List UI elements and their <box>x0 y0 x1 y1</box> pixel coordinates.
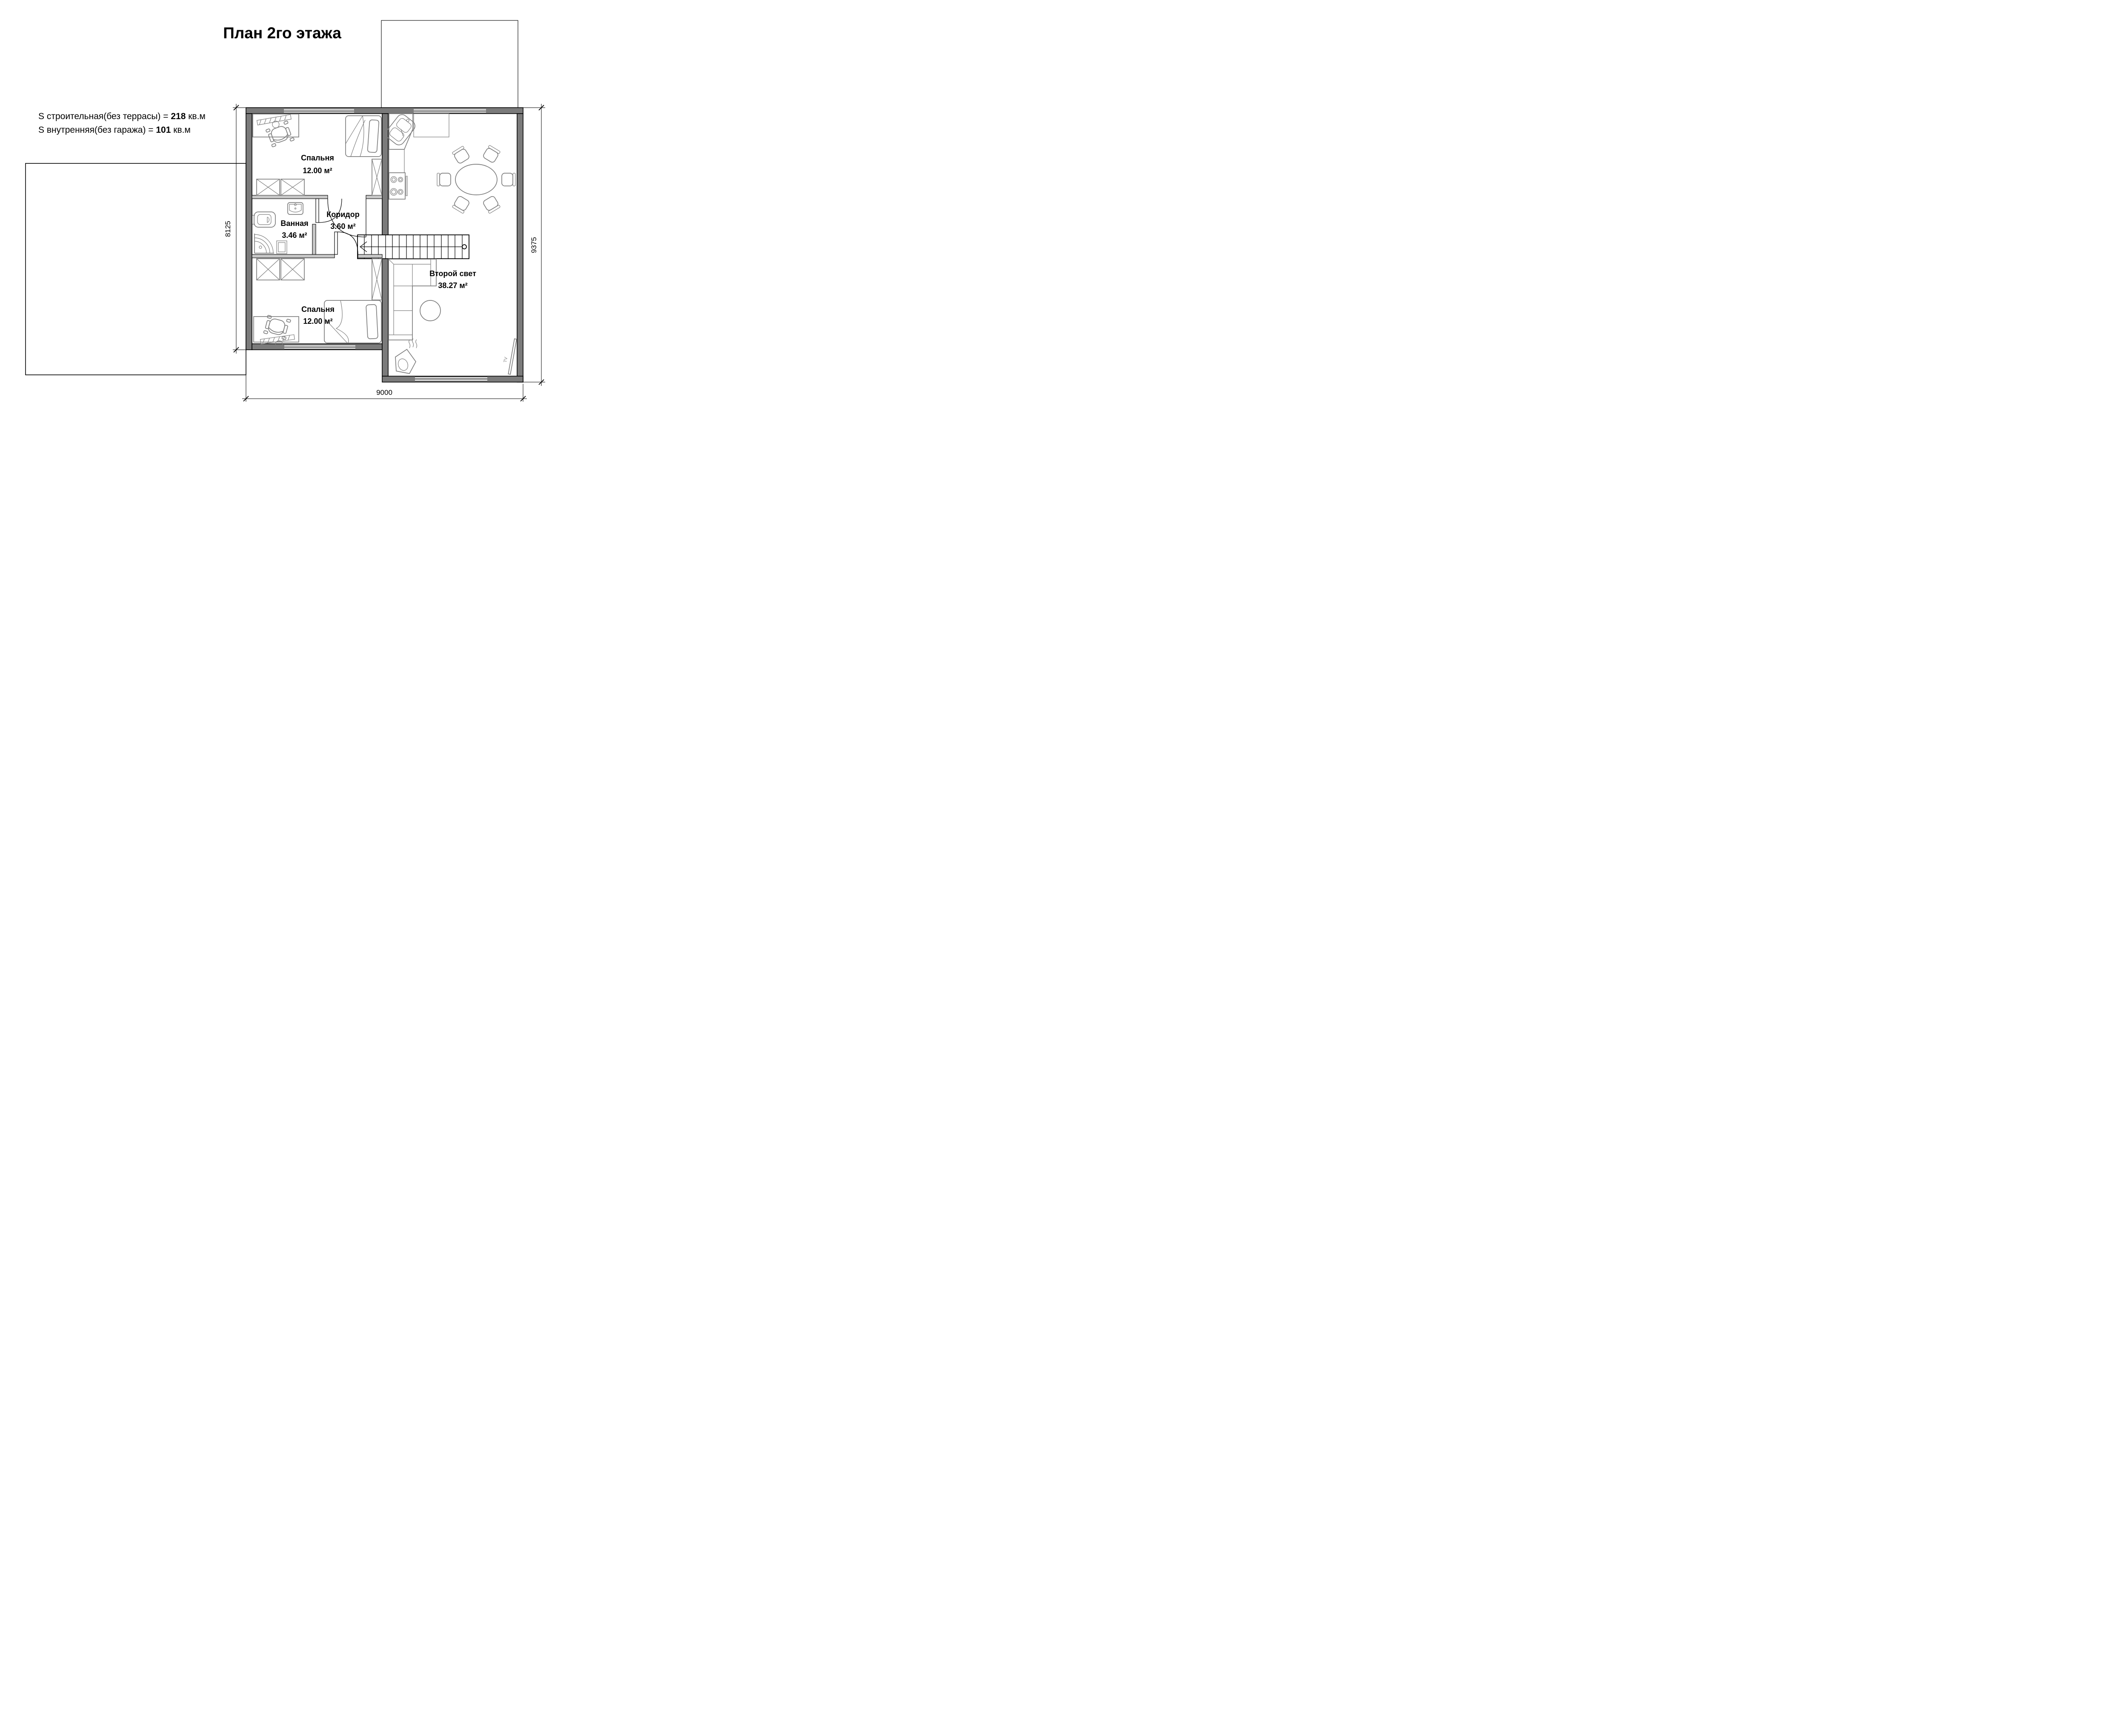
bathroom-fixtures <box>252 203 303 254</box>
partition-corridor-bottom-right <box>358 254 382 258</box>
wall-interior-lower <box>382 259 388 376</box>
roof-outline <box>381 20 518 108</box>
label-bedroom-bottom-name: Спальня <box>301 305 335 314</box>
label-corridor-name: Коридор <box>326 210 359 219</box>
dining-chair-icon <box>482 145 500 163</box>
dimension-right: 9375 <box>523 104 545 386</box>
label-bathroom-name: Ванная <box>280 219 308 228</box>
area-line-1: S строительная(без террасы) = 218 кв.м <box>38 111 206 121</box>
closet-icon <box>257 259 280 280</box>
wall-interior-upper <box>382 114 388 235</box>
stove-icon <box>389 173 407 199</box>
label-bathroom-area: 3.46 м² <box>282 231 307 240</box>
page-title: План 2го этажа <box>223 24 341 42</box>
sink-icon <box>288 203 303 214</box>
wall-left <box>246 114 252 350</box>
closet-icon <box>281 259 304 280</box>
dining-chair-icon <box>452 146 470 164</box>
dining-set <box>437 145 515 214</box>
window-top-bedroom <box>284 108 354 113</box>
window-living <box>415 377 487 382</box>
partition-corridor-top-left <box>252 195 328 199</box>
label-corridor-area: 3.60 м² <box>330 222 355 231</box>
desk-icon <box>254 317 299 342</box>
label-living-name: Второй свет <box>429 269 476 278</box>
partition-corridor-bottom-left <box>252 254 335 258</box>
stairs-start-post <box>462 245 466 249</box>
dining-chair-icon <box>452 195 470 214</box>
bathroom-door-leaf <box>316 199 319 223</box>
dining-chair-icon <box>482 195 500 214</box>
dining-chair-icon <box>502 173 515 186</box>
partition-corridor-top-right <box>366 195 382 199</box>
wall-right <box>517 114 523 382</box>
window-top-dining <box>414 108 486 113</box>
label-living-area: 38.27 м² <box>438 281 467 290</box>
dining-chair-icon <box>437 173 451 186</box>
fireplace-icon <box>395 339 417 374</box>
closets <box>257 159 382 300</box>
closet-icon <box>257 179 280 195</box>
window-bottom-bedroom <box>284 344 355 349</box>
floor-plan-canvas: План 2го этажа S строительная(без террас… <box>0 0 562 434</box>
label-bedroom-top-area: 12.00 м² <box>303 166 332 175</box>
kitchen-counter <box>389 149 404 173</box>
tv: TV <box>503 339 517 374</box>
kitchen-counter-right <box>414 114 449 137</box>
label-bedroom-bottom-area: 12.00 м² <box>303 317 332 325</box>
tv-icon <box>508 339 517 374</box>
wardrobe-tall-icon <box>372 159 382 195</box>
wardrobe-tall-icon <box>372 259 382 300</box>
toilet-icon <box>252 212 275 227</box>
dimension-left-value: 8125 <box>224 221 232 237</box>
bedroom-top-furniture <box>253 114 381 157</box>
area-annotations: S строительная(без террасы) = 218 кв.м S… <box>38 111 206 135</box>
bath-shelf-icon <box>277 241 287 254</box>
bedroom-bottom-door-arc <box>338 232 358 254</box>
dimension-left: 8125 <box>224 104 246 354</box>
bedroom-bottom-door-leaf <box>335 232 338 254</box>
shower-icon <box>255 234 274 253</box>
bed-icon <box>346 116 381 157</box>
terrace-outline <box>26 163 246 375</box>
dining-table-icon <box>455 164 497 195</box>
dimension-bottom-value: 9000 <box>376 388 392 397</box>
closet-icon <box>281 179 304 195</box>
partition-bathroom-right <box>312 224 316 254</box>
tv-label: TV <box>503 357 509 363</box>
label-bedroom-top-name: Спальня <box>301 154 334 162</box>
coffee-table-icon <box>420 300 440 321</box>
dimension-right-value: 9375 <box>530 237 538 253</box>
area-line-2: S внутренняя(без гаража) = 101 кв.м <box>38 125 191 135</box>
